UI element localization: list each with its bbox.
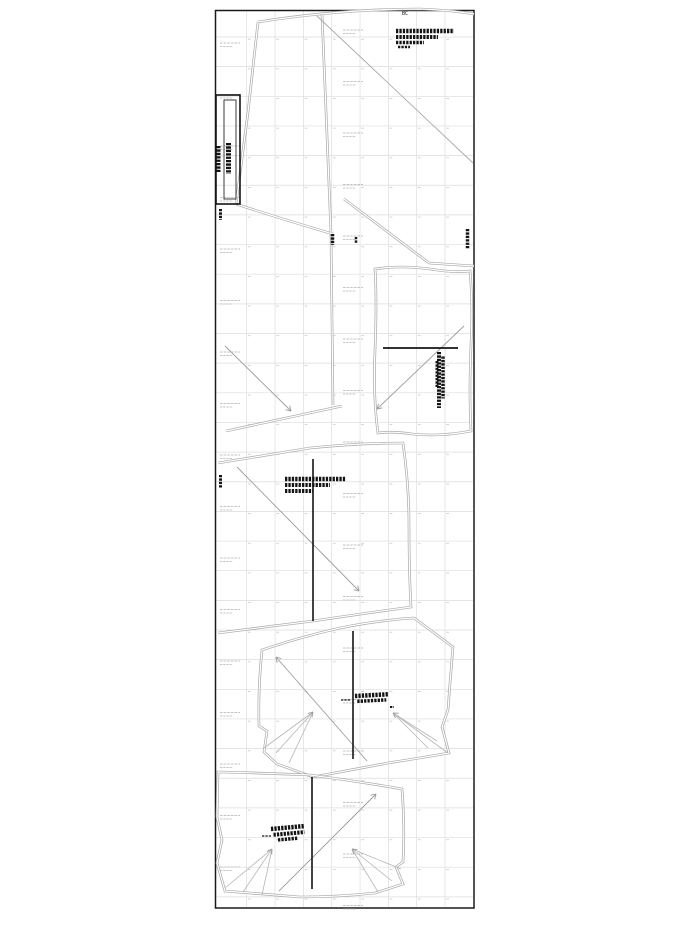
sheet-grid-label: BC xyxy=(402,12,408,17)
pattern-sheet-stage: BC xyxy=(0,0,700,931)
pattern-sheet-drawing xyxy=(0,0,700,931)
